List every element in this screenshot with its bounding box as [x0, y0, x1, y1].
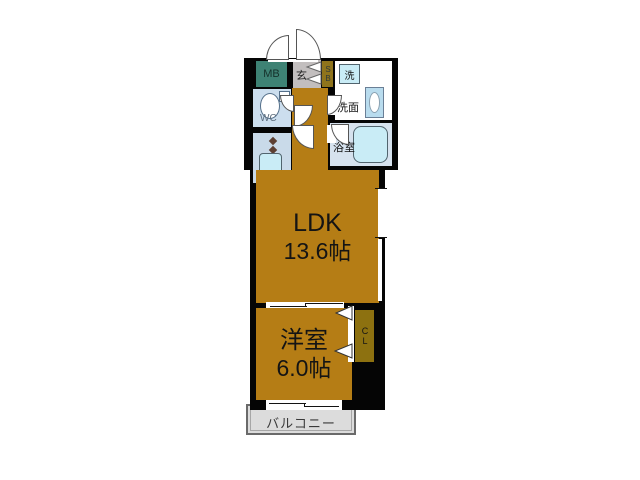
- closet-folding-door-icon: [336, 306, 352, 320]
- folding-door-markers: [0, 0, 640, 480]
- entrance-cabinet-door-icon: [307, 62, 321, 72]
- floorplan-canvas: バルコニー 玄 MB SB 洗 洗面 浴室 WC 冷 LDK 13.6帖: [0, 0, 640, 480]
- entrance-cabinet-door-icon: [307, 74, 321, 84]
- closet-folding-door-icon: [335, 344, 352, 358]
